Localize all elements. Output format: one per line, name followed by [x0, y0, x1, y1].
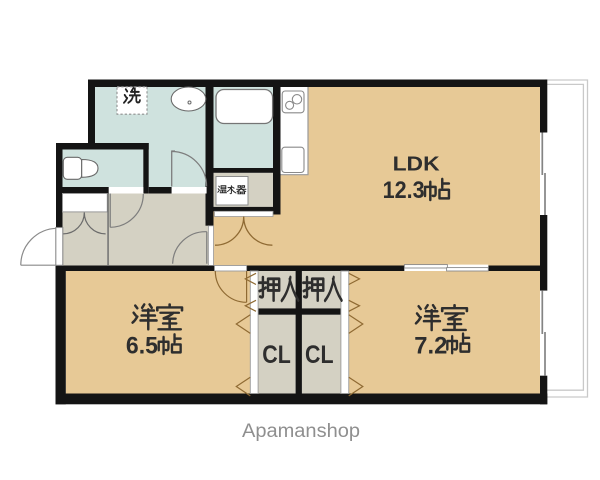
svg-text:7.2: 7.2 [414, 332, 447, 359]
svg-text:12.3: 12.3 [383, 177, 425, 204]
svg-text:Apamanshop: Apamanshop [242, 421, 360, 442]
svg-text:CL: CL [305, 341, 334, 369]
svg-text:CL: CL [262, 341, 291, 369]
svg-text:6.5: 6.5 [126, 332, 158, 359]
svg-text:LDK: LDK [393, 154, 441, 176]
